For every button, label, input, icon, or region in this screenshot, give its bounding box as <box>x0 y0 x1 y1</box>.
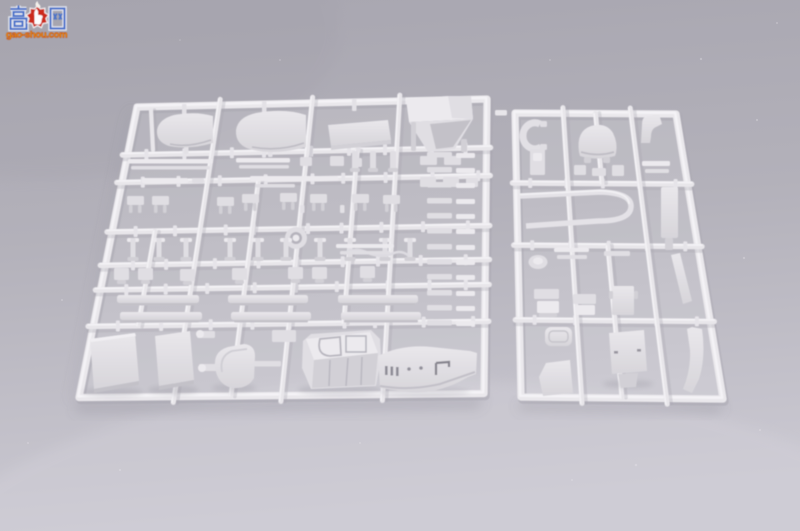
svg-text:gao-shou.com: gao-shou.com <box>6 30 67 41</box>
